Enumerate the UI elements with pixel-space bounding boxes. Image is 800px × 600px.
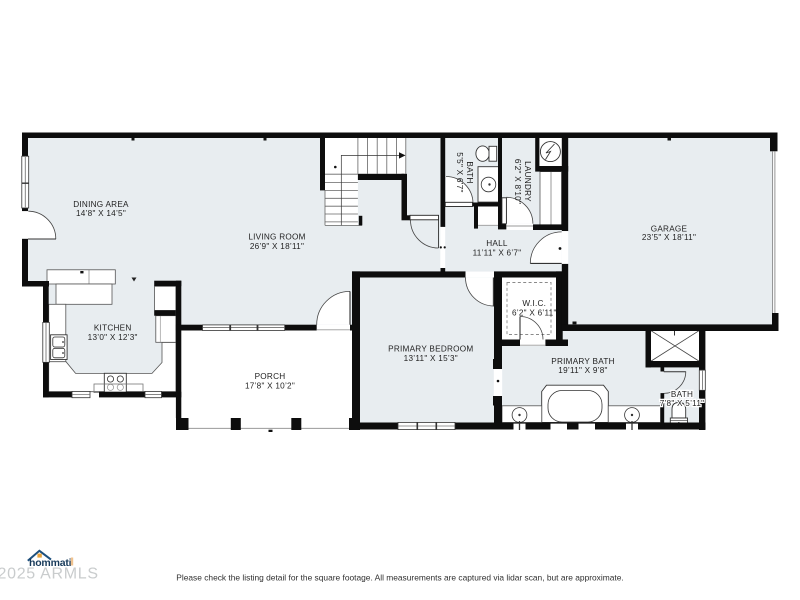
svg-text:23’5" X 18’11": 23’5" X 18’11"	[642, 233, 696, 242]
svg-text:LIVING ROOM: LIVING ROOM	[248, 233, 305, 242]
svg-text:6’2" X 6’11": 6’2" X 6’11"	[512, 309, 557, 318]
svg-text:6’2" X 8’10": 6’2" X 8’10"	[513, 159, 522, 204]
svg-text:PRIMARY BATH: PRIMARY BATH	[551, 357, 615, 366]
svg-text:Please check the listing detai: Please check the listing detail for the …	[176, 573, 623, 583]
svg-text:14’8" X 14’5": 14’8" X 14’5"	[76, 209, 126, 218]
svg-text:BATH: BATH	[465, 161, 474, 183]
svg-text:BATH: BATH	[671, 390, 693, 399]
svg-text:W.I.C.: W.I.C.	[522, 299, 546, 308]
svg-text:KITCHEN: KITCHEN	[94, 324, 132, 333]
svg-text:LAUNDRY: LAUNDRY	[523, 161, 532, 202]
svg-text:19’11" X 9’8": 19’11" X 9’8"	[558, 366, 607, 375]
svg-text:26’9" X 18’11": 26’9" X 18’11"	[250, 242, 304, 251]
svg-text:PRIMARY BEDROOM: PRIMARY BEDROOM	[388, 345, 473, 354]
svg-text:HALL: HALL	[486, 239, 508, 248]
svg-text:13’11" X 15’3": 13’11" X 15’3"	[404, 354, 458, 363]
svg-text:PORCH: PORCH	[255, 372, 286, 381]
svg-text:11’11" X 6’7": 11’11" X 6’7"	[473, 249, 522, 258]
svg-text:DINING AREA: DINING AREA	[73, 200, 129, 209]
svg-text:GARAGE: GARAGE	[651, 224, 688, 233]
svg-text:17’8" X 10’2": 17’8" X 10’2"	[245, 382, 295, 391]
svg-text:7’8" X 5’11": 7’8" X 5’11"	[660, 399, 705, 408]
svg-text:5’5" X 6’7": 5’5" X 6’7"	[455, 152, 464, 192]
svg-text:13’0" X 12’3": 13’0" X 12’3"	[88, 333, 138, 342]
svg-text:hommati: hommati	[29, 557, 72, 569]
